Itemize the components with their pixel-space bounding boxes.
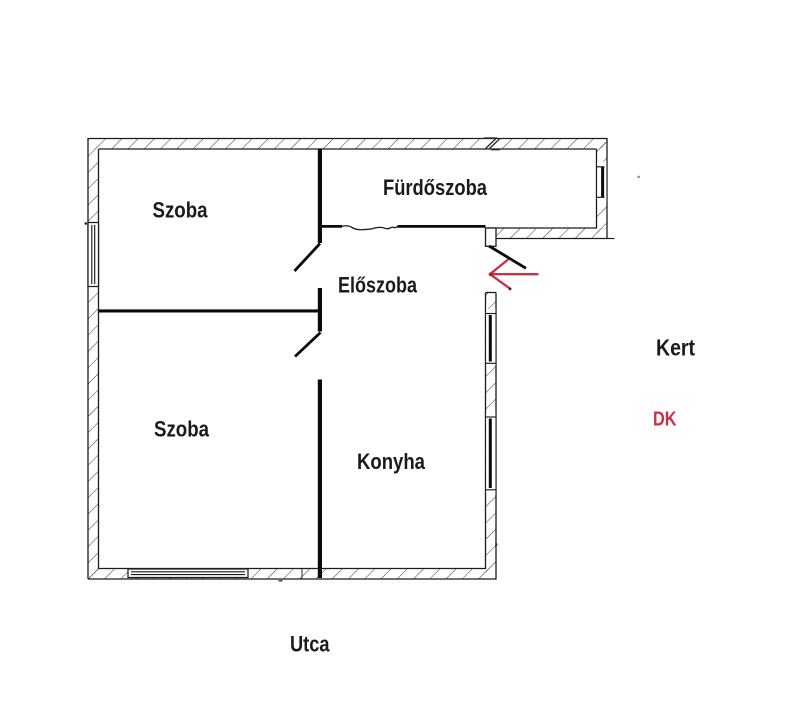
svg-text:DK: DK <box>653 409 677 431</box>
svg-text:Utca: Utca <box>290 632 330 657</box>
svg-text:Fürdőszoba: Fürdőszoba <box>383 175 488 200</box>
svg-text:Szoba: Szoba <box>153 198 209 223</box>
svg-text:Előszoba: Előszoba <box>338 273 418 298</box>
svg-text:Kert: Kert <box>656 335 695 361</box>
svg-text:Konyha: Konyha <box>357 449 426 474</box>
svg-text:Szoba: Szoba <box>154 417 210 442</box>
